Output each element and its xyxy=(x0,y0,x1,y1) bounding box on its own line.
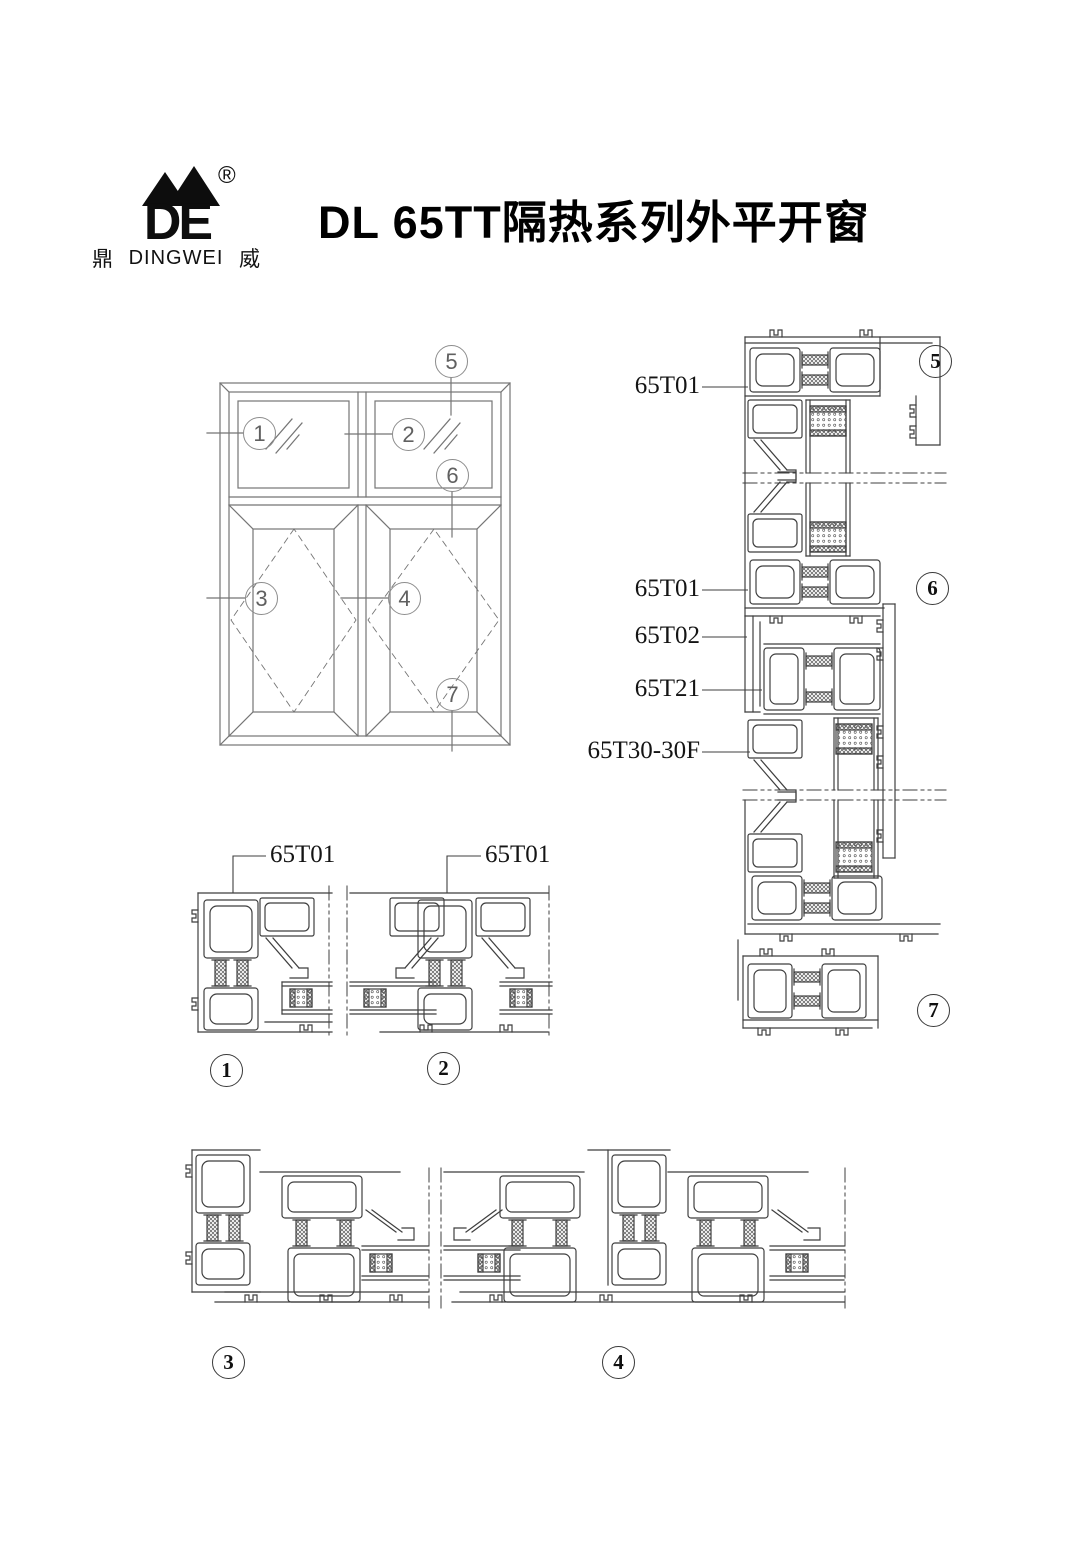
callout-detail-3: 3 xyxy=(212,1346,245,1379)
callout-elevation-4: 4 xyxy=(388,582,421,615)
callout-detail-1: 1 xyxy=(210,1054,243,1087)
section-3-drawing xyxy=(186,1150,429,1308)
section-1-drawing xyxy=(192,886,332,1038)
callout-detail-7: 7 xyxy=(917,994,950,1027)
callout-elevation-6: 6 xyxy=(436,459,469,492)
vertical-section-stack-drawing xyxy=(738,330,946,1035)
callout-detail-6: 6 xyxy=(916,572,949,605)
section-4-drawing xyxy=(441,1150,845,1308)
profile-label-65t01-top: 65T01 xyxy=(598,372,700,400)
profile-label-65t30-30f: 65T30-30F xyxy=(548,737,700,765)
profile-label-section2-65t01: 65T01 xyxy=(485,841,550,869)
profile-label-section1-65t01: 65T01 xyxy=(270,841,335,869)
drawing-canvas xyxy=(0,0,1090,1542)
profile-label-65t02: 65T02 xyxy=(598,622,700,650)
callout-elevation-1: 1 xyxy=(243,417,276,450)
callout-detail-5: 5 xyxy=(919,345,952,378)
callout-elevation-5: 5 xyxy=(435,345,468,378)
profile-label-65t01-mid: 65T01 xyxy=(598,575,700,603)
callout-elevation-2: 2 xyxy=(392,418,425,451)
callout-detail-4: 4 xyxy=(602,1346,635,1379)
section-2-drawing xyxy=(347,886,552,1038)
callout-elevation-7: 7 xyxy=(436,678,469,711)
callout-elevation-3: 3 xyxy=(245,582,278,615)
profile-label-65t21: 65T21 xyxy=(598,675,700,703)
callout-detail-2: 2 xyxy=(427,1052,460,1085)
drawing-sheet: DE ® 鼎 DINGWEI 威 DL 65TT隔热系列外平开窗 xyxy=(0,0,1090,1542)
